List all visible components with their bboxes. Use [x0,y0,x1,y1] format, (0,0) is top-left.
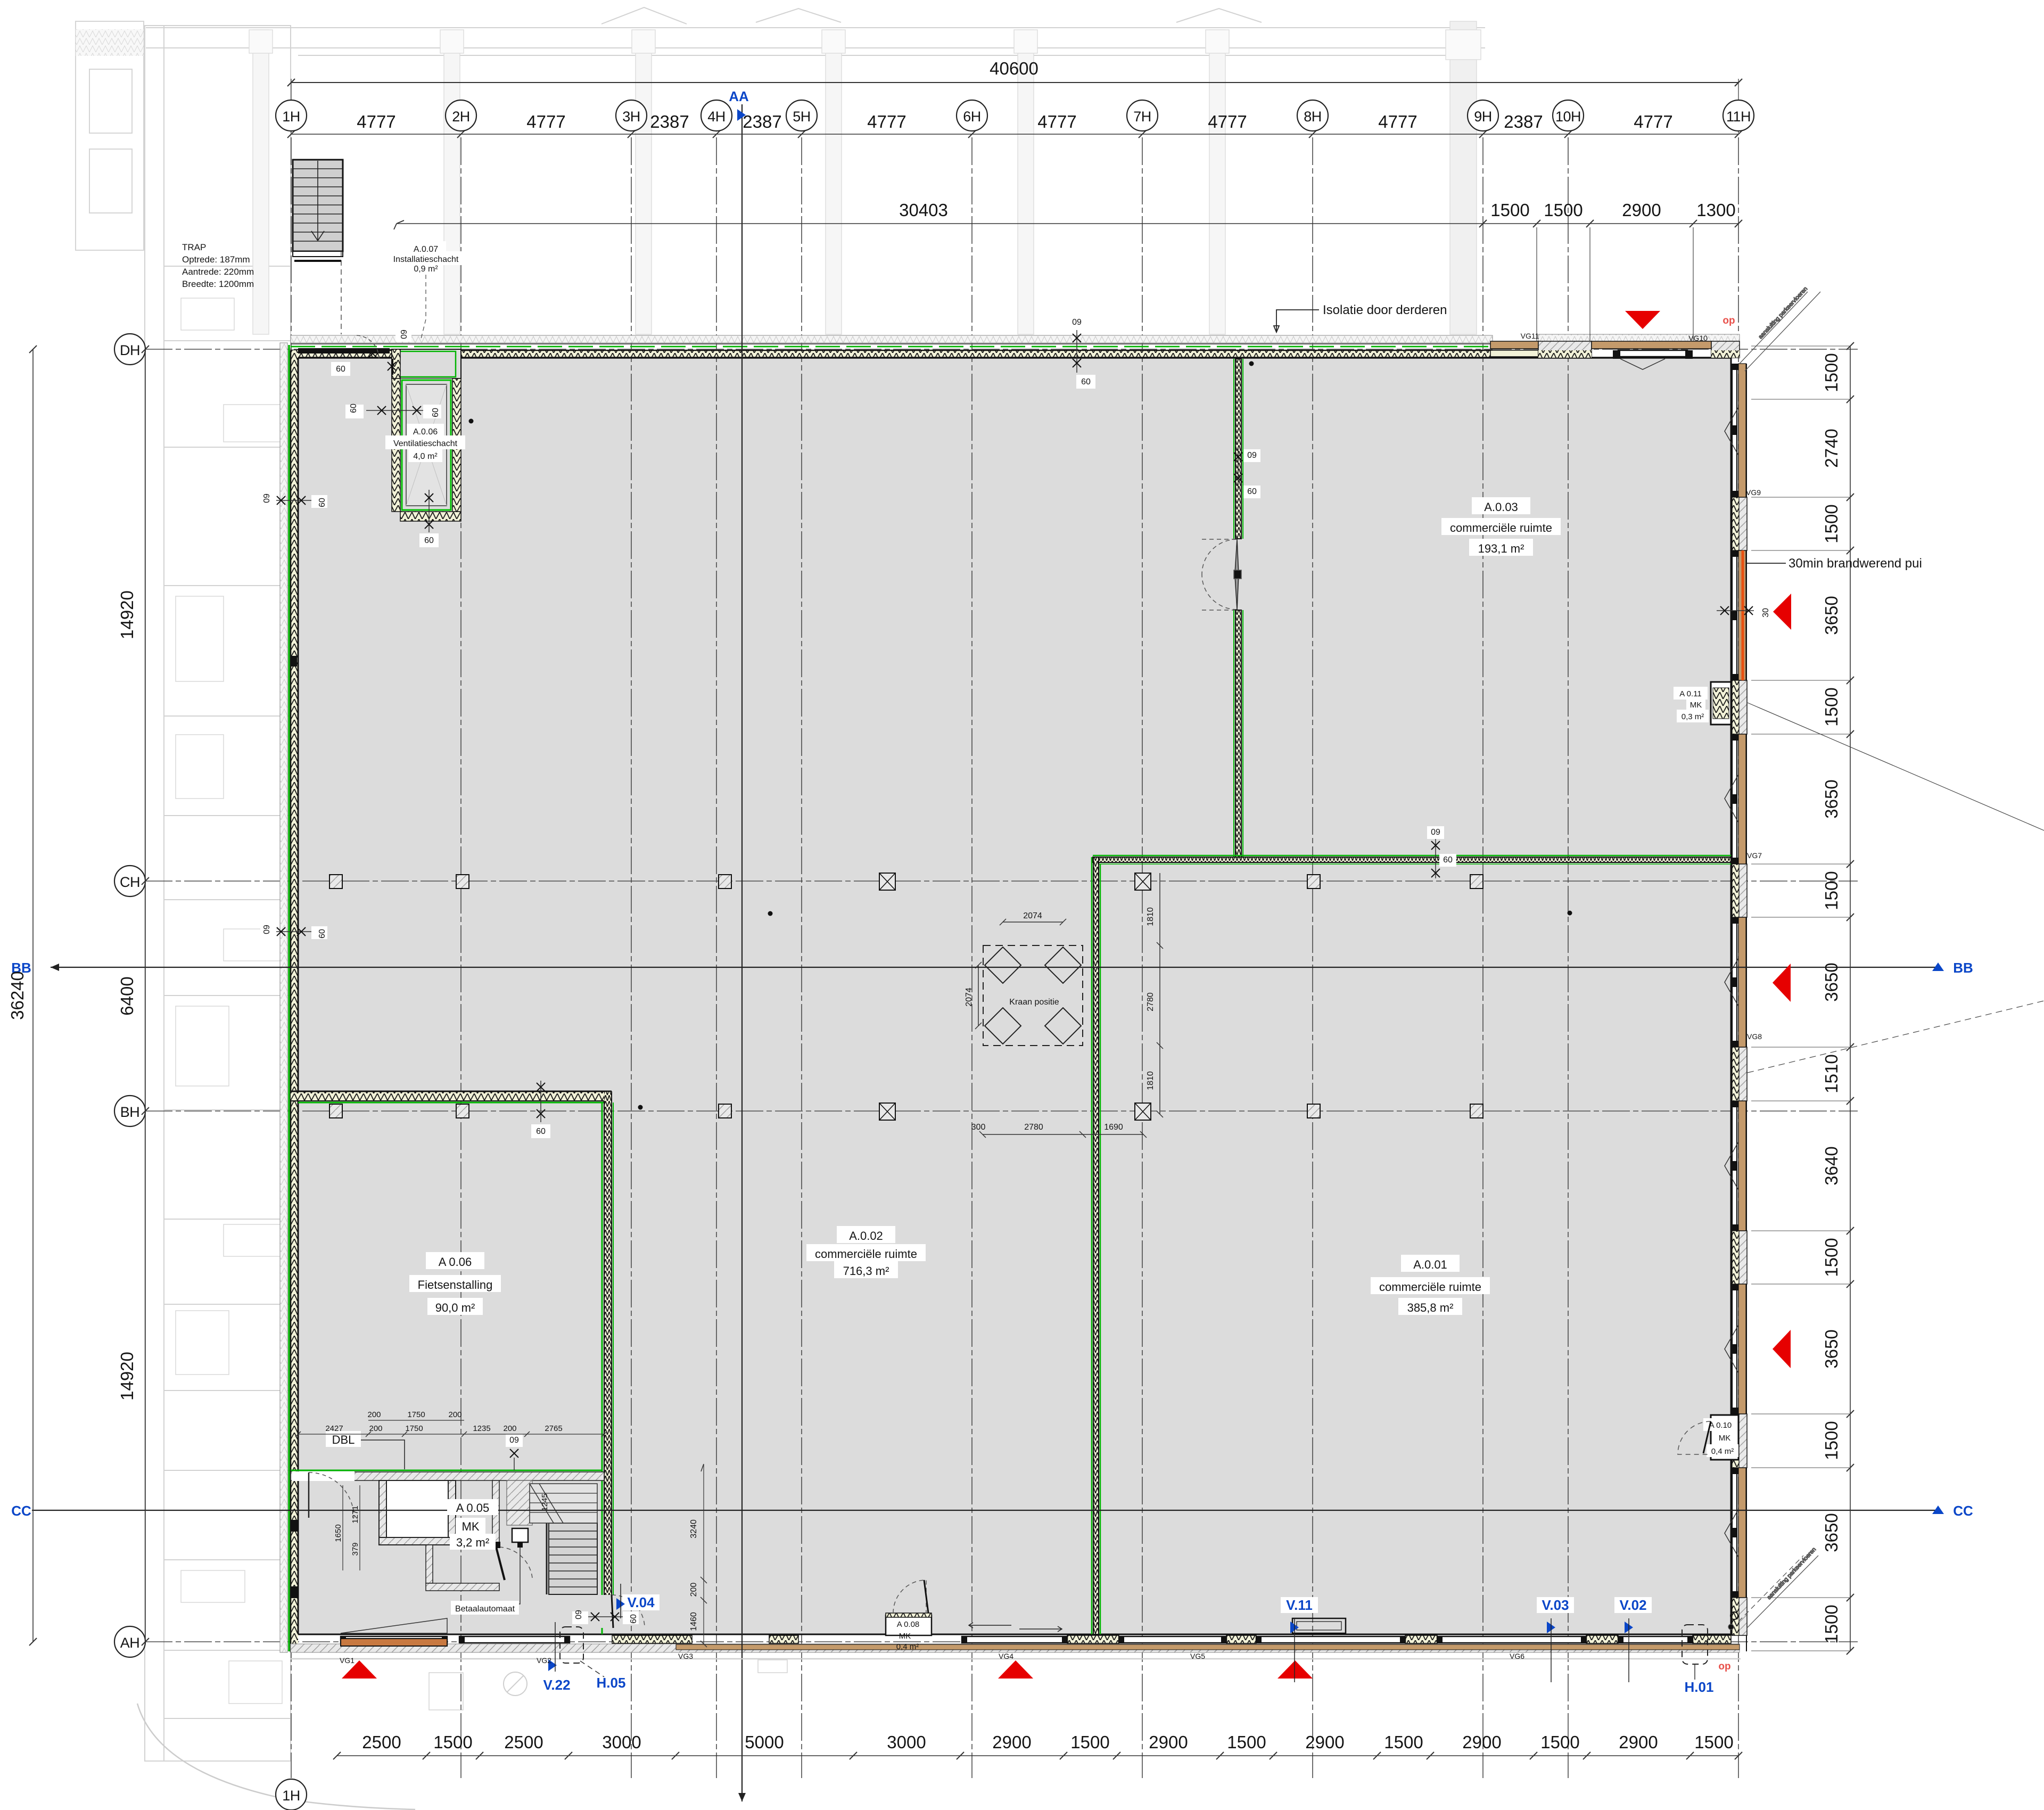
svg-text:14920: 14920 [117,590,137,639]
svg-text:1H: 1H [282,1788,300,1804]
svg-text:5H: 5H [793,109,811,125]
svg-text:379: 379 [351,1542,360,1556]
svg-text:1271: 1271 [351,1505,360,1523]
svg-text:1500: 1500 [1822,1605,1841,1643]
svg-text:2780: 2780 [1146,992,1155,1011]
svg-text:commerciële ruimte: commerciële ruimte [1379,1280,1481,1294]
svg-text:1500: 1500 [1544,200,1583,220]
svg-text:6400: 6400 [117,976,137,1015]
svg-text:VG6: VG6 [1510,1652,1524,1660]
svg-text:4,0 m²: 4,0 m² [413,452,438,461]
svg-text:2900: 2900 [1619,1732,1658,1752]
svg-text:1500: 1500 [1540,1732,1579,1752]
svg-text:2900: 2900 [1149,1732,1188,1752]
svg-text:H.01: H.01 [1685,1679,1714,1695]
svg-text:1245: 1245 [540,1493,549,1511]
svg-text:CH: CH [120,874,140,890]
svg-text:1750: 1750 [405,1424,423,1433]
svg-text:A.0.07: A.0.07 [414,245,438,254]
svg-text:3H: 3H [622,109,640,125]
svg-text:2074: 2074 [1023,911,1042,920]
svg-text:4H: 4H [707,109,726,125]
svg-text:60: 60 [629,1614,638,1624]
svg-text:36240: 36240 [7,971,27,1020]
svg-text:60: 60 [424,536,434,545]
svg-text:09: 09 [574,1610,583,1619]
svg-text:1810: 1810 [1146,1071,1155,1090]
svg-text:385,8 m²: 385,8 m² [1407,1301,1454,1314]
svg-text:2780: 2780 [1024,1123,1043,1132]
svg-text:09: 09 [1072,318,1082,327]
svg-text:30403: 30403 [899,200,948,220]
svg-text:A 0.05: A 0.05 [456,1501,489,1515]
svg-text:MK: MK [899,1632,911,1641]
svg-text:300: 300 [971,1123,986,1132]
svg-text:2765: 2765 [545,1424,562,1433]
svg-text:Optrede: 187mm: Optrede: 187mm [182,254,250,265]
svg-text:Ventilatieschacht: Ventilatieschacht [393,439,458,448]
svg-text:4777: 4777 [867,112,906,131]
svg-text:60: 60 [536,1127,546,1136]
svg-text:3650: 3650 [1822,1513,1841,1552]
svg-text:9H: 9H [1474,109,1492,125]
svg-text:1500: 1500 [1822,1421,1841,1460]
svg-text:V.03: V.03 [1542,1597,1569,1613]
svg-text:2740: 2740 [1822,429,1841,467]
svg-text:1235: 1235 [473,1424,490,1433]
svg-text:1500: 1500 [1822,353,1841,392]
svg-text:Breedte: 1200mm: Breedte: 1200mm [182,279,254,289]
svg-text:A.0.06: A.0.06 [413,427,438,437]
svg-text:200: 200 [367,1410,381,1419]
svg-text:200: 200 [448,1410,461,1419]
svg-text:193,1 m²: 193,1 m² [1478,542,1524,555]
svg-text:2074: 2074 [965,988,974,1007]
svg-text:1500: 1500 [1822,504,1841,543]
svg-text:2500: 2500 [504,1732,543,1752]
svg-text:1500: 1500 [1490,200,1529,220]
svg-text:5000: 5000 [745,1732,784,1752]
svg-text:MK: MK [1690,701,1702,710]
svg-text:MK: MK [462,1520,480,1533]
svg-text:1650: 1650 [334,1524,343,1542]
svg-text:60: 60 [336,365,345,374]
svg-text:A.0.01: A.0.01 [1413,1258,1447,1271]
svg-text:60: 60 [1443,855,1453,865]
svg-text:A.0.03: A.0.03 [1484,500,1518,514]
svg-text:A 0.10: A 0.10 [1709,1421,1732,1430]
svg-text:BH: BH [120,1104,140,1120]
svg-text:09: 09 [262,925,271,934]
svg-text:BB: BB [1953,960,1973,976]
svg-text:VG4: VG4 [999,1652,1013,1660]
svg-text:op: op [1722,315,1735,326]
svg-text:VG1: VG1 [340,1656,355,1665]
svg-text:2427: 2427 [325,1424,343,1433]
svg-text:4777: 4777 [1037,112,1076,131]
svg-text:2900: 2900 [1462,1732,1501,1752]
svg-text:60: 60 [318,929,327,939]
svg-text:A 0.11: A 0.11 [1679,689,1701,698]
svg-text:3000: 3000 [887,1732,926,1752]
svg-text:VG3: VG3 [678,1652,693,1660]
svg-text:Isolatie door derderen: Isolatie door derderen [1323,303,1447,317]
svg-text:2387: 2387 [1504,112,1543,131]
svg-text:90,0 m²: 90,0 m² [435,1301,475,1314]
svg-text:1500: 1500 [433,1732,472,1752]
svg-text:60: 60 [318,498,327,507]
svg-text:09: 09 [1431,828,1440,837]
svg-text:1500: 1500 [1384,1732,1423,1752]
svg-text:11H: 11H [1726,109,1751,125]
svg-text:716,3 m²: 716,3 m² [843,1264,889,1278]
svg-text:3650: 3650 [1822,962,1841,1001]
svg-text:3650: 3650 [1822,596,1841,635]
svg-text:A 0.06: A 0.06 [439,1255,472,1269]
svg-text:0,9 m²: 0,9 m² [414,265,438,274]
svg-text:DH: DH [120,342,140,358]
svg-text:4777: 4777 [357,112,395,131]
svg-text:8H: 8H [1304,109,1322,125]
svg-text:14920: 14920 [117,1352,137,1401]
svg-text:1H: 1H [282,109,300,125]
svg-text:3650: 3650 [1822,779,1841,818]
svg-text:09: 09 [400,330,409,339]
svg-text:1750: 1750 [407,1410,425,1419]
svg-text:2500: 2500 [362,1732,401,1752]
svg-text:4777: 4777 [1634,112,1672,131]
svg-text:200: 200 [369,1424,382,1433]
svg-text:H.05: H.05 [597,1675,626,1691]
svg-text:2900: 2900 [992,1732,1031,1752]
svg-text:DBL: DBL [332,1433,355,1446]
svg-text:1500: 1500 [1822,687,1841,726]
svg-text:60: 60 [431,408,440,417]
svg-text:Aantrede: 220mm: Aantrede: 220mm [182,267,254,277]
svg-text:200: 200 [503,1424,516,1433]
svg-text:CC: CC [11,1503,31,1519]
svg-text:1460: 1460 [689,1612,698,1631]
svg-text:CC: CC [1953,1503,1973,1519]
svg-text:AA: AA [729,88,749,104]
svg-text:TRAP: TRAP [182,242,206,252]
svg-text:4777: 4777 [1378,112,1417,131]
svg-text:V.11: V.11 [1286,1597,1313,1613]
svg-text:V.04: V.04 [627,1594,655,1610]
svg-text:1500: 1500 [1822,871,1841,910]
svg-text:10H: 10H [1555,109,1581,125]
svg-text:2387: 2387 [743,112,781,131]
svg-text:60: 60 [349,404,358,413]
svg-text:Betaalautomaat: Betaalautomaat [455,1605,515,1614]
svg-text:09: 09 [509,1436,519,1445]
svg-text:1810: 1810 [1146,907,1155,926]
svg-text:4777: 4777 [526,112,565,131]
svg-text:MK: MK [1719,1434,1731,1443]
svg-text:1500: 1500 [1227,1732,1266,1752]
svg-text:1510: 1510 [1822,1054,1841,1093]
svg-text:3,2 m²: 3,2 m² [456,1536,489,1549]
svg-text:4777: 4777 [1208,112,1247,131]
svg-text:3640: 3640 [1822,1146,1841,1185]
svg-text:3240: 3240 [689,1519,698,1538]
svg-text:6H: 6H [963,109,981,125]
svg-text:09: 09 [1247,451,1257,460]
svg-text:VG2: VG2 [537,1656,551,1665]
svg-text:op: op [1718,1661,1730,1672]
svg-text:1500: 1500 [1070,1732,1109,1752]
svg-text:0,4 m²: 0,4 m² [1711,1447,1734,1456]
svg-text:2387: 2387 [650,112,689,131]
svg-text:3650: 3650 [1822,1329,1841,1368]
svg-text:1500: 1500 [1694,1732,1733,1752]
svg-text:200: 200 [689,1583,698,1597]
svg-text:Fietsenstalling: Fietsenstalling [418,1278,493,1291]
svg-text:2900: 2900 [1622,200,1661,220]
svg-text:VG7: VG7 [1747,851,1762,860]
svg-text:Installatieschacht: Installatieschacht [393,255,459,264]
svg-text:1300: 1300 [1696,200,1735,220]
svg-text:30min brandwerend pui: 30min brandwerend pui [1789,556,1922,571]
svg-text:7H: 7H [1133,109,1151,125]
svg-text:2H: 2H [452,109,470,125]
svg-text:30: 30 [1761,608,1770,618]
svg-text:0,4 m²: 0,4 m² [896,1642,919,1651]
svg-text:3000: 3000 [602,1732,641,1752]
svg-text:40600: 40600 [990,59,1039,78]
svg-text:VG9: VG9 [1746,488,1761,497]
svg-text:V.22: V.22 [543,1677,570,1693]
svg-text:Kraan positie: Kraan positie [1009,998,1059,1007]
svg-text:commerciële ruimte: commerciële ruimte [815,1247,917,1261]
svg-text:commerciële ruimte: commerciële ruimte [1450,521,1552,534]
svg-text:60: 60 [1081,377,1091,386]
svg-text:A 0.08: A 0.08 [897,1620,920,1629]
svg-text:V.02: V.02 [1619,1597,1646,1613]
svg-text:09: 09 [262,493,271,503]
svg-text:1690: 1690 [1104,1123,1123,1132]
svg-text:AH: AH [120,1635,140,1651]
svg-text:VG10: VG10 [1688,334,1708,342]
svg-text:VG11: VG11 [1521,332,1539,340]
svg-text:60: 60 [1247,487,1257,496]
svg-text:0,3 m²: 0,3 m² [1682,712,1704,721]
svg-text:VG5: VG5 [1190,1652,1205,1660]
svg-text:2900: 2900 [1305,1732,1344,1752]
svg-text:A.0.02: A.0.02 [849,1229,883,1243]
svg-text:1500: 1500 [1822,1238,1841,1277]
svg-text:VG8: VG8 [1747,1032,1762,1041]
